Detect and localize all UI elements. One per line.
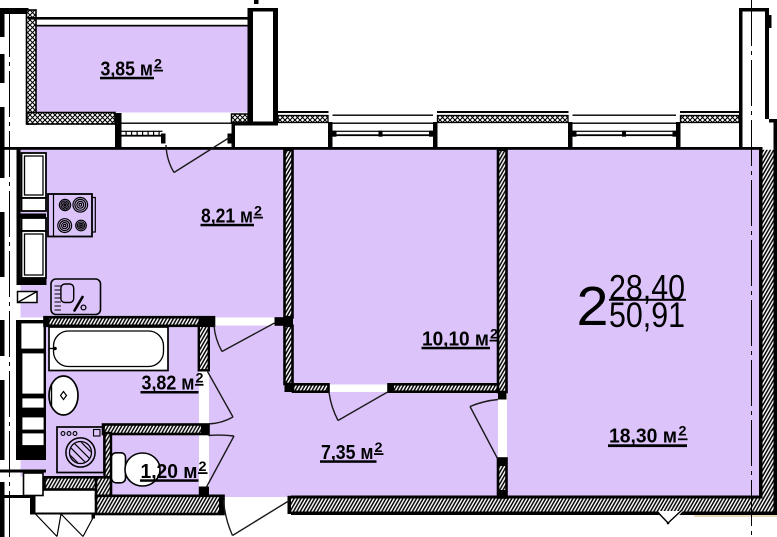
svg-text:2: 2 — [154, 56, 162, 72]
svg-text:50,91: 50,91 — [609, 296, 685, 335]
svg-text:2: 2 — [577, 275, 609, 337]
svg-text:18,30 м: 18,30 м — [609, 426, 677, 448]
svg-text:2: 2 — [196, 370, 204, 386]
svg-text:2: 2 — [490, 326, 498, 342]
svg-text:2: 2 — [679, 423, 687, 439]
svg-text:2: 2 — [254, 203, 262, 219]
svg-text:2: 2 — [199, 458, 207, 474]
svg-text:2: 2 — [375, 439, 383, 455]
